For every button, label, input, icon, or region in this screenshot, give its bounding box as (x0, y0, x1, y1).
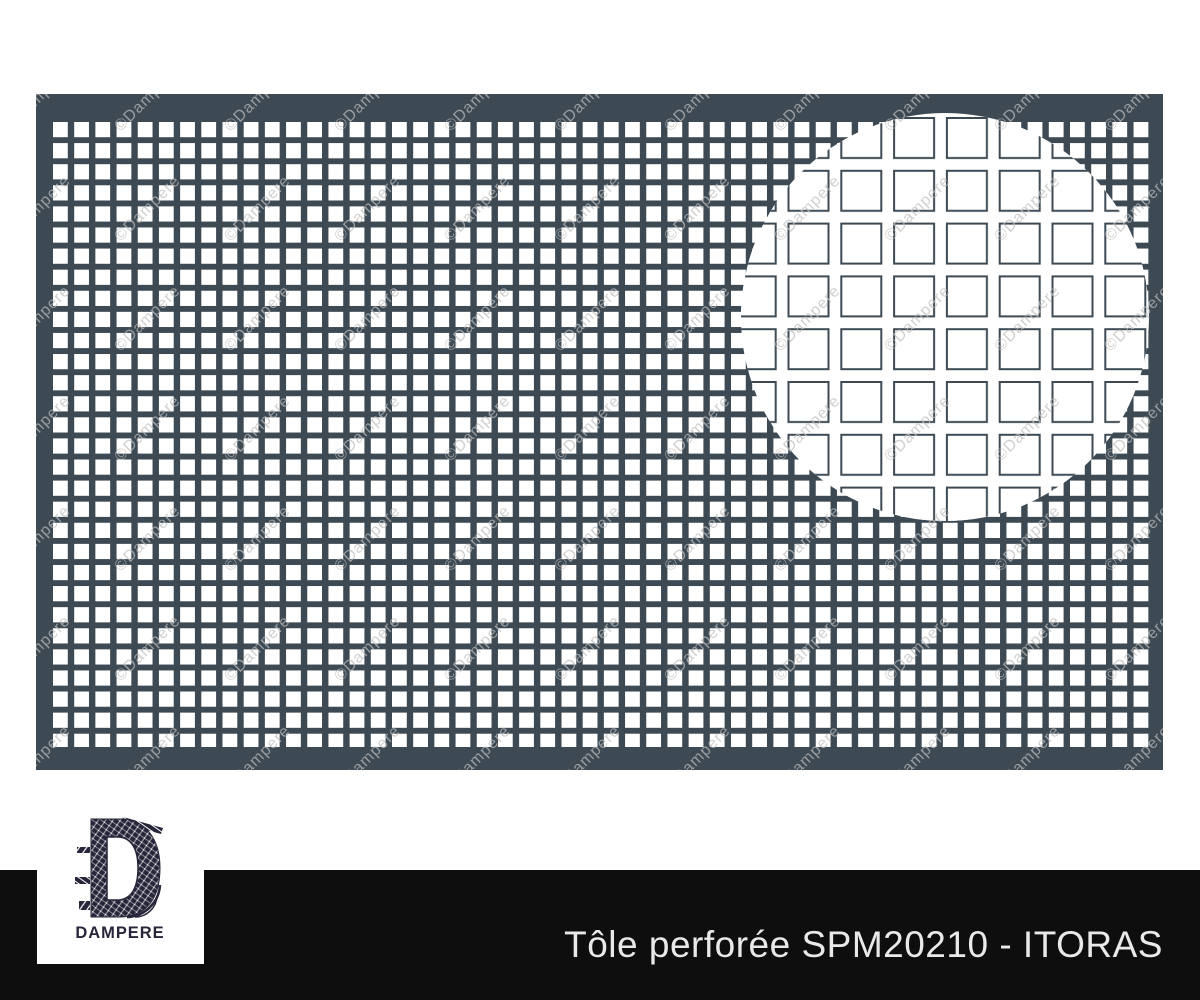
brand-name: DAMPERE (76, 923, 165, 943)
product-title: Tôle perforée SPM20210 - ITORAS (564, 926, 1163, 963)
page: ©Dampere©Dampere©Dampere©Dampere©Dampere… (0, 0, 1200, 1000)
dampere-logo-icon (75, 817, 167, 921)
zoom-detail-circle (741, 113, 1149, 521)
zoom-square-pattern-icon (741, 113, 1149, 521)
brand-logo-box: DAMPERE (37, 810, 204, 964)
perforated-sheet: ©Dampere©Dampere©Dampere©Dampere©Dampere… (36, 94, 1163, 770)
